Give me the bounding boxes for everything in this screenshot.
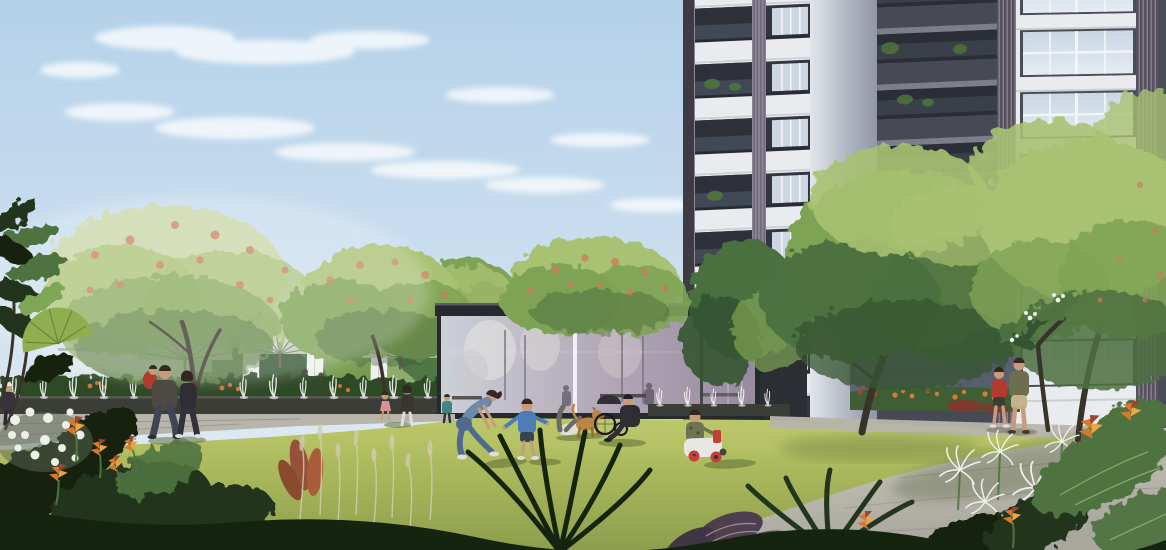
tree-shadow-on-lawn bbox=[780, 435, 980, 461]
architectural-render bbox=[0, 0, 1166, 550]
scene-canvas bbox=[0, 0, 1166, 550]
